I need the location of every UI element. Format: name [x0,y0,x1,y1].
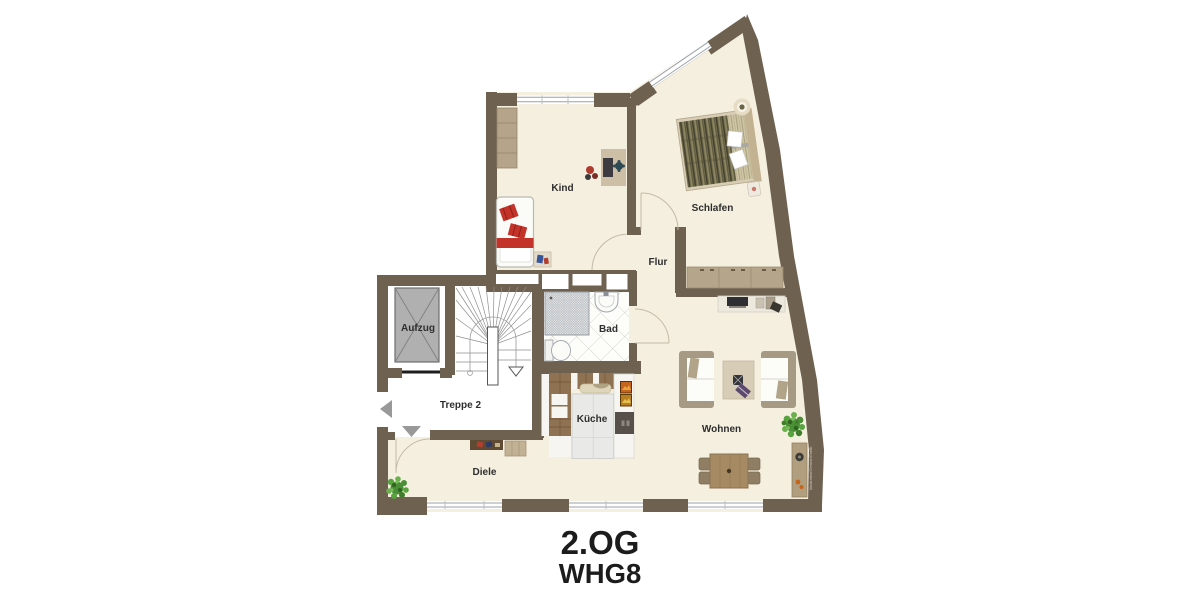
svg-text:Wohnen: Wohnen [702,424,741,435]
svg-text:Kind: Kind [551,183,573,194]
svg-text:2.OG: 2.OG [561,524,640,561]
svg-text:Bad: Bad [599,324,618,335]
svg-text:WHG8: WHG8 [559,558,642,589]
svg-text:IllustrationGermanGrafik: IllustrationGermanGrafik [808,447,813,490]
svg-text:Aufzug: Aufzug [401,323,435,334]
svg-text:Treppe 2: Treppe 2 [440,400,482,411]
svg-text:Flur: Flur [649,257,668,268]
svg-text:Schlafen: Schlafen [692,203,734,214]
svg-text:Küche: Küche [577,414,608,425]
svg-text:Diele: Diele [473,467,497,478]
